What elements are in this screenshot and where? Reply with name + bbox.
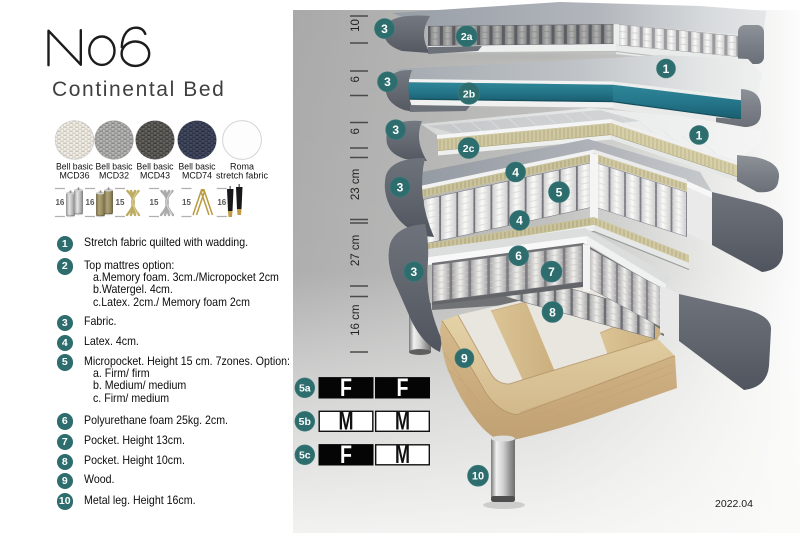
svg-text:4: 4: [516, 214, 523, 228]
svg-text:5a: 5a: [299, 383, 311, 395]
svg-text:F: F: [340, 374, 352, 402]
svg-text:2a: 2a: [461, 31, 473, 43]
svg-text:3: 3: [411, 265, 418, 279]
svg-text:2b: 2b: [463, 88, 475, 100]
svg-text:M: M: [395, 441, 410, 469]
svg-text:M: M: [339, 407, 354, 435]
svg-text:5c: 5c: [299, 450, 311, 462]
svg-text:4: 4: [512, 165, 519, 179]
svg-text:3: 3: [384, 75, 391, 89]
svg-text:27 cm: 27 cm: [350, 235, 362, 266]
svg-text:F: F: [397, 374, 409, 402]
svg-text:5b: 5b: [299, 416, 311, 428]
svg-text:5: 5: [556, 185, 563, 199]
svg-text:2022.04: 2022.04: [715, 498, 753, 510]
svg-text:9: 9: [461, 352, 468, 366]
svg-text:10: 10: [350, 19, 362, 32]
svg-text:16 cm: 16 cm: [350, 305, 362, 336]
svg-text:M: M: [395, 407, 410, 435]
svg-text:8: 8: [549, 305, 556, 319]
svg-text:1: 1: [696, 128, 703, 142]
svg-text:3: 3: [397, 180, 404, 194]
svg-text:3: 3: [392, 123, 399, 137]
svg-text:6: 6: [515, 249, 522, 263]
svg-text:1: 1: [663, 62, 670, 76]
svg-text:23 cm: 23 cm: [350, 169, 362, 200]
svg-text:10: 10: [472, 471, 484, 483]
svg-text:6: 6: [350, 128, 362, 134]
svg-text:7: 7: [548, 265, 555, 279]
svg-text:6: 6: [350, 76, 362, 82]
svg-text:3: 3: [381, 22, 388, 36]
svg-text:2c: 2c: [463, 143, 475, 155]
svg-text:F: F: [340, 441, 352, 469]
